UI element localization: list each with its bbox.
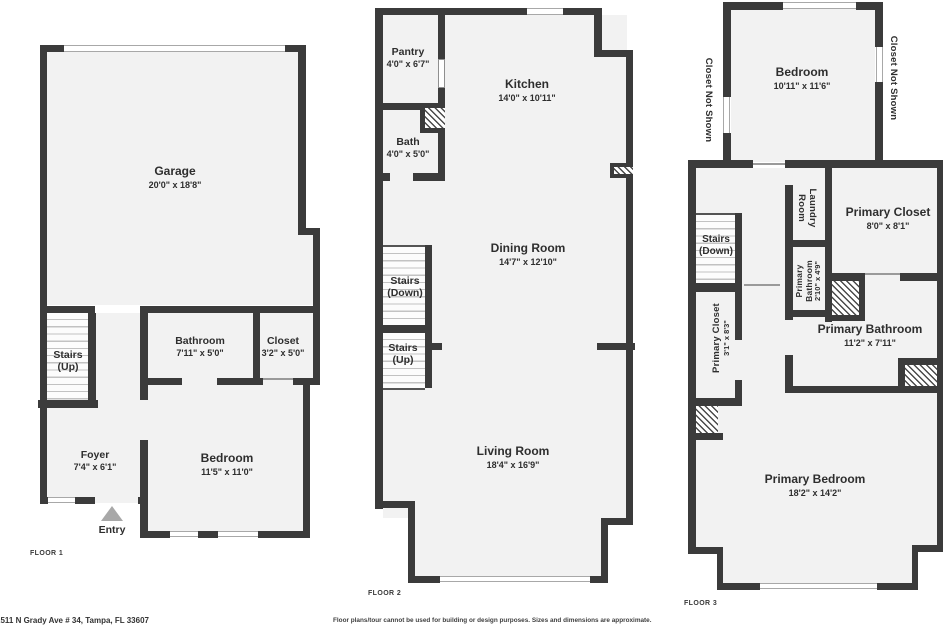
room-dims: 14'7" x 12'10" (499, 257, 557, 267)
room-name: Bathroom (175, 335, 225, 347)
hatched-area (420, 108, 445, 133)
floor2-caption: FLOOR 2 (368, 590, 401, 597)
wall-segment (408, 501, 415, 583)
wall-segment (40, 497, 48, 504)
room-name: Closet (267, 335, 299, 347)
wall-segment (717, 583, 760, 590)
wall-segment (723, 133, 731, 163)
wall-segment (375, 8, 383, 509)
floor3-caption: FLOOR 3 (684, 600, 717, 607)
wall-segment (875, 2, 883, 47)
room-name: Primary Bedroom (765, 473, 866, 487)
wall-segment (717, 553, 723, 587)
closet-not-shown-left-label: Closet Not Shown (698, 45, 718, 155)
room-dims: 7'11" x 5'0" (176, 348, 223, 358)
wall-segment (688, 398, 742, 406)
wall-segment (140, 306, 148, 400)
wall-segment (438, 8, 445, 59)
wall-segment (688, 440, 696, 553)
room-name: Dining Room (491, 242, 566, 256)
room-dims: 3'1" x 8'3" (723, 320, 732, 356)
wall-segment (875, 82, 883, 163)
window (876, 47, 883, 82)
wall-segment (40, 313, 47, 503)
room-dims: 10'11" x 11'6" (774, 81, 831, 91)
note-text: Closet Not Shown (703, 58, 714, 142)
room-name: Stairs (702, 234, 730, 246)
room-label-primary-bathroom-small: Primary Bathroom 2'10" x 4'9" (790, 249, 828, 313)
room-name: Stairs (390, 275, 419, 287)
wall-segment (40, 45, 64, 52)
room-name: Room (795, 194, 806, 222)
room-dims: 8'0" x 8'1" (867, 221, 910, 231)
wall-segment (378, 325, 432, 333)
room-label-kitchen: Kitchen 14'0" x 10'11" (462, 78, 592, 103)
room-label-bedroom: Bedroom 10'11" x 11'6" (742, 66, 862, 91)
room-dims: 2'10" x 4'9" (814, 261, 823, 301)
door (865, 273, 900, 275)
shower-area (905, 365, 937, 386)
room-name: Laundry (806, 189, 817, 228)
room-dims: (Up) (393, 354, 414, 366)
wall-segment (198, 531, 218, 538)
wall-segment (735, 292, 742, 340)
wall-segment (145, 531, 170, 538)
hatched-area (610, 163, 633, 178)
room-dims: (Up) (58, 361, 79, 373)
room-name: Bath (396, 136, 419, 148)
window (64, 45, 285, 52)
wall-segment (413, 173, 445, 181)
wall-segment (378, 173, 390, 181)
room-name: Pantry (392, 46, 425, 58)
door (438, 59, 445, 88)
wall-segment (723, 2, 783, 10)
window (440, 576, 590, 582)
room-name: Stairs (53, 349, 82, 361)
wall-segment (688, 433, 723, 440)
room-dims: 7'4" x 6'1" (74, 462, 117, 472)
wall-segment (735, 380, 742, 400)
room-label-dining-room: Dining Room 14'7" x 12'10" (458, 242, 598, 267)
room-name: Primary Bathroom (818, 323, 923, 337)
window (527, 8, 563, 15)
wall-segment (438, 88, 445, 181)
wall-segment (298, 45, 306, 235)
room-label-primary-closet-left: Primary Closet 3'1" x 8'3" (708, 294, 736, 382)
window (723, 97, 730, 133)
room-label-laundry-room: Laundry Room (792, 179, 820, 237)
room-label-pantry: Pantry 4'0" x 6'7" (378, 46, 438, 69)
room-name: Living Room (477, 445, 550, 459)
wall-segment (900, 273, 943, 281)
window (48, 497, 75, 503)
room-dims: 11'2" x 7'11" (844, 338, 896, 348)
room-label-bath: Bath 4'0" x 5'0" (378, 136, 438, 159)
room-name: Primary Closet (846, 206, 931, 220)
wall-segment (626, 50, 633, 525)
room-name: Bedroom (776, 66, 829, 80)
floor2-floor-lower (415, 518, 601, 578)
room-label-stairs-down: Stairs (Down) (686, 234, 746, 257)
wall-segment (832, 273, 865, 281)
wall-segment (898, 358, 905, 393)
room-dims: (Down) (387, 287, 423, 299)
room-name: Bedroom (201, 452, 254, 466)
floor1-caption: FLOOR 1 (30, 550, 63, 557)
room-name: Stairs (388, 342, 417, 354)
room-dims: 11'5" x 11'0" (201, 467, 253, 477)
wall-segment (912, 545, 943, 552)
room-label-foyer: Foyer 7'4" x 6'1" (55, 449, 135, 472)
wall-segment (601, 518, 633, 525)
room-dims: (Down) (699, 246, 733, 258)
room-name: Garage (154, 165, 195, 179)
room-label-garage: Garage 20'0" x 18'8" (115, 165, 235, 190)
wall-segment (597, 343, 635, 350)
door (753, 163, 785, 165)
property-address: 2511 N Grady Ave # 34, Tampa, FL 33607 (0, 616, 149, 625)
room-label-stairs-up: Stairs (Up) (36, 349, 100, 373)
wall-segment (298, 228, 320, 235)
wall-segment (303, 378, 310, 538)
entry-arrow-icon (101, 506, 123, 521)
door (263, 378, 293, 380)
window (783, 2, 856, 9)
wall-segment (688, 160, 753, 168)
window (760, 583, 877, 589)
floorplan-canvas: Garage 20'0" x 18'8" Stairs (Up) Bathroo… (0, 0, 947, 628)
wall-segment (138, 497, 148, 504)
room-dims: 18'4" x 16'9" (487, 460, 540, 470)
room-name: Foyer (81, 449, 110, 461)
wall-segment (38, 400, 98, 408)
garage-floor-notch (300, 235, 313, 305)
room-dims: 14'0" x 10'11" (498, 93, 555, 103)
wall-segment (148, 378, 182, 385)
room-label-bedroom: Bedroom 11'5" x 11'0" (167, 452, 287, 477)
room-dims: 4'0" x 5'0" (387, 149, 430, 159)
wall-segment (40, 306, 95, 313)
room-label-closet: Closet 3'2" x 5'0" (253, 335, 313, 358)
room-label-primary-closet-upper: Primary Closet 8'0" x 8'1" (823, 206, 947, 231)
room-label-living-room: Living Room 18'4" x 16'9" (448, 445, 578, 470)
wall-segment (217, 378, 263, 385)
room-name: Kitchen (505, 78, 549, 92)
room-label-stairs-up: Stairs (Up) (372, 342, 434, 366)
note-text: Closet Not Shown (888, 36, 899, 120)
entry-label: Entry (82, 524, 142, 536)
hatched-area (696, 406, 718, 433)
floor3-lower-floor (723, 548, 912, 585)
entry-text: Entry (99, 524, 126, 536)
room-label-stairs-down: Stairs (Down) (374, 275, 436, 299)
room-dims: 4'0" x 6'7" (387, 59, 430, 69)
room-dims: 3'2" x 5'0" (262, 348, 305, 358)
wall-segment (258, 531, 310, 538)
disclaimer-text: Floor plans/tour cannot be used for buil… (333, 617, 652, 624)
wall-segment (408, 576, 440, 583)
wall-segment (40, 45, 47, 313)
room-dims: 18'2" x 14'2" (789, 488, 842, 498)
wall-segment (425, 245, 432, 388)
wall-segment (785, 386, 943, 393)
window (170, 531, 198, 537)
wall-segment (785, 160, 943, 168)
wall-segment (601, 518, 608, 583)
door (744, 284, 780, 286)
wall-segment (375, 8, 527, 15)
room-dims: 20'0" x 18'8" (149, 180, 202, 190)
wall-segment (143, 306, 320, 313)
room-label-primary-bathroom: Primary Bathroom 11'2" x 7'11" (795, 323, 945, 348)
window (218, 531, 258, 537)
wall-segment (723, 2, 731, 97)
room-label-bathroom: Bathroom 7'11" x 5'0" (150, 335, 250, 358)
room-label-primary-bedroom: Primary Bedroom 18'2" x 14'2" (740, 473, 890, 498)
closet-not-shown-right-label: Closet Not Shown (883, 23, 903, 133)
wall-segment (688, 283, 742, 292)
shower-area (832, 281, 865, 321)
wall-segment (75, 497, 95, 504)
